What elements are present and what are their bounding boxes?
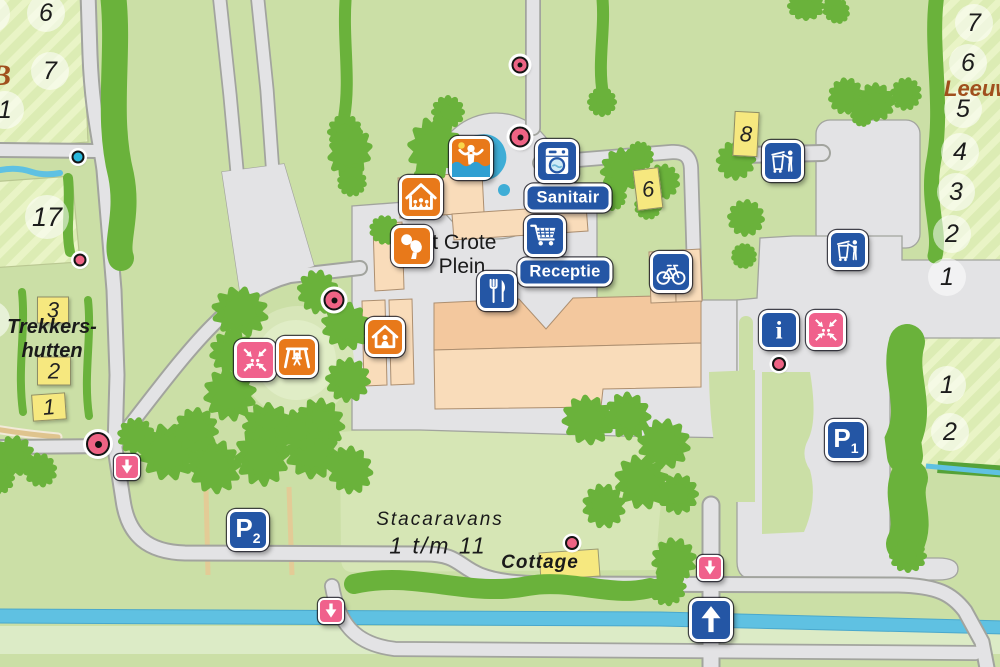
water-point-marker[interactable] bbox=[72, 151, 85, 164]
route-up-icon[interactable] bbox=[689, 598, 733, 642]
building-8: 8 bbox=[732, 111, 759, 157]
laundry-icon[interactable] bbox=[535, 139, 579, 183]
route-down-icon[interactable] bbox=[697, 555, 723, 581]
pitch-circle: 2 bbox=[933, 215, 971, 253]
accommodation-icon[interactable] bbox=[365, 317, 405, 357]
pitch-circle: 7 bbox=[31, 52, 69, 90]
playground-swing-icon[interactable] bbox=[276, 336, 318, 378]
bicycle-icon[interactable] bbox=[650, 251, 692, 293]
shopping-cart-icon[interactable] bbox=[524, 215, 566, 257]
pitch-circle: 1 bbox=[928, 366, 966, 404]
poi-marker[interactable] bbox=[512, 57, 529, 74]
trekkershut-1: 1 bbox=[31, 392, 67, 421]
pitch-circle: 2 bbox=[931, 413, 969, 451]
pitch-circle: 4 bbox=[941, 133, 979, 171]
stacaravans-range-label: 1 t/m 11 bbox=[389, 533, 486, 560]
poi-marker[interactable] bbox=[510, 127, 531, 148]
campground-map[interactable]: 6 7 1 17 7 6 5 4 3 2 1 1 2 3 2 1 8 6 B L… bbox=[0, 0, 1000, 667]
swimming-pool-icon[interactable] bbox=[449, 136, 493, 180]
poi-marker[interactable] bbox=[86, 432, 110, 456]
area-label-leeuwerik: Leeuw bbox=[944, 76, 1000, 102]
meeting-point-icon[interactable] bbox=[234, 339, 276, 381]
route-down-icon[interactable] bbox=[114, 454, 140, 480]
table-tennis-icon[interactable] bbox=[391, 225, 433, 267]
poi-marker[interactable] bbox=[772, 357, 786, 371]
poi-marker[interactable] bbox=[74, 254, 87, 267]
cottage-label: Cottage bbox=[501, 552, 579, 574]
pitch-circle: 1 bbox=[928, 258, 966, 296]
area-label-b: B bbox=[0, 59, 11, 93]
pitch-circle: 17 bbox=[25, 195, 69, 239]
receptie-badge[interactable]: Receptie bbox=[517, 258, 612, 287]
building-6: 6 bbox=[633, 167, 664, 211]
waste-disposal-icon[interactable] bbox=[828, 230, 868, 270]
sanitair-badge[interactable]: Sanitair bbox=[525, 184, 612, 213]
meeting-point-icon[interactable] bbox=[806, 310, 846, 350]
pitch-circle: 3 bbox=[937, 173, 975, 211]
map-terrain bbox=[0, 0, 1000, 667]
stacaravans-label: Stacaravans bbox=[376, 509, 504, 531]
indoor-play-icon[interactable] bbox=[399, 175, 443, 219]
trekkershutten-label: Trekkers- hutten bbox=[7, 315, 97, 363]
waste-disposal-icon[interactable] bbox=[762, 140, 804, 182]
poi-marker[interactable] bbox=[565, 536, 579, 550]
info-icon[interactable]: i bbox=[759, 310, 799, 350]
svg-text:i: i bbox=[775, 316, 782, 345]
poi-marker[interactable] bbox=[324, 290, 345, 311]
restaurant-icon[interactable] bbox=[477, 271, 517, 311]
parking-p2-icon[interactable]: P2 bbox=[227, 509, 269, 551]
pitch-circle: 7 bbox=[955, 4, 993, 42]
route-down-icon[interactable] bbox=[318, 598, 344, 624]
parking-p1-icon[interactable]: P1 bbox=[825, 419, 867, 461]
